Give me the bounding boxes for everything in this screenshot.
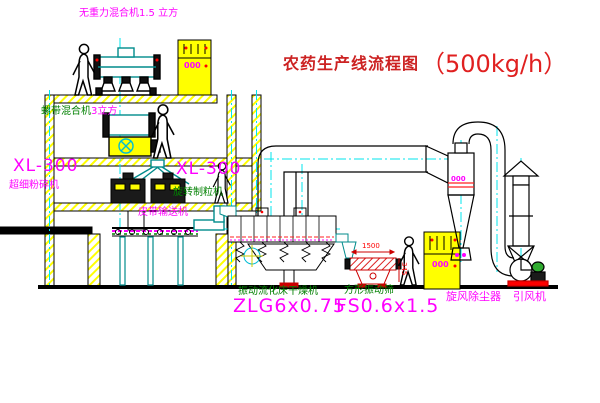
dryer-springs bbox=[236, 242, 330, 262]
mill-left-machine bbox=[111, 173, 145, 203]
label-fan: 引风机 bbox=[513, 291, 546, 302]
label-gravity-free-mixer: 无重力混合机1.5 立方 bbox=[79, 9, 178, 19]
fluid-bed-dryer-machine bbox=[220, 206, 356, 287]
exhaust-duct bbox=[258, 146, 448, 216]
gravity-free-mixer-machine bbox=[93, 48, 161, 95]
fan-motor bbox=[532, 262, 544, 272]
dryer-crosshair bbox=[241, 245, 263, 267]
person-ground bbox=[399, 237, 419, 285]
person-top-floor bbox=[73, 44, 95, 95]
ribbon-mixer-machine bbox=[103, 113, 160, 156]
belt-conveyor bbox=[112, 228, 198, 285]
diagram-title: 农药生产线流程图 （500kg/h） bbox=[283, 44, 567, 79]
dim-sieve-width: 1500 bbox=[362, 243, 380, 250]
fan-base bbox=[508, 281, 548, 286]
tag-panel-right: 000 bbox=[432, 261, 449, 269]
label-xl300-left: XL-300 bbox=[13, 158, 78, 175]
label-dryer-model: ZLG6x0.75 bbox=[233, 297, 346, 316]
dim-sieve-height: 345 bbox=[400, 262, 407, 275]
label-sieve-model: FS0.6x1.5 bbox=[336, 297, 439, 316]
label-ribbon-mixer-name: 螺带混合机 bbox=[41, 106, 91, 117]
title-text: 农药生产线流程图 bbox=[283, 50, 419, 74]
square-sieve-machine bbox=[345, 250, 401, 287]
label-ribbon-mixer: 螺带混合机3立方 bbox=[41, 107, 117, 117]
floor-slab-top bbox=[45, 95, 217, 103]
label-cyclone: 旋风除尘器 bbox=[446, 291, 501, 302]
tag-panel-top: 000 bbox=[184, 62, 201, 70]
pit-wall-right bbox=[216, 234, 228, 286]
ground-ledge-left bbox=[0, 227, 92, 234]
title-capacity: （500kg/h） bbox=[421, 44, 567, 79]
label-belt-conveyor: 皮带输送机 bbox=[138, 208, 188, 218]
tag-cyclone: 000 bbox=[451, 176, 466, 183]
label-granulator: 旋转制粒机 bbox=[173, 188, 223, 198]
flow-diagram-canvas: 农药生产线流程图 （500kg/h） 无重力混合机1.5 立方 螺带混合机3立方… bbox=[0, 0, 600, 403]
label-xl300-mid: XL-300 bbox=[176, 161, 241, 178]
exhaust-stack bbox=[504, 161, 538, 262]
induced-fan bbox=[508, 259, 548, 286]
label-ribbon-mixer-size: 3立方 bbox=[91, 106, 117, 117]
label-mill: 超细粉碎机 bbox=[9, 181, 59, 191]
pit-wall-left bbox=[88, 234, 100, 286]
